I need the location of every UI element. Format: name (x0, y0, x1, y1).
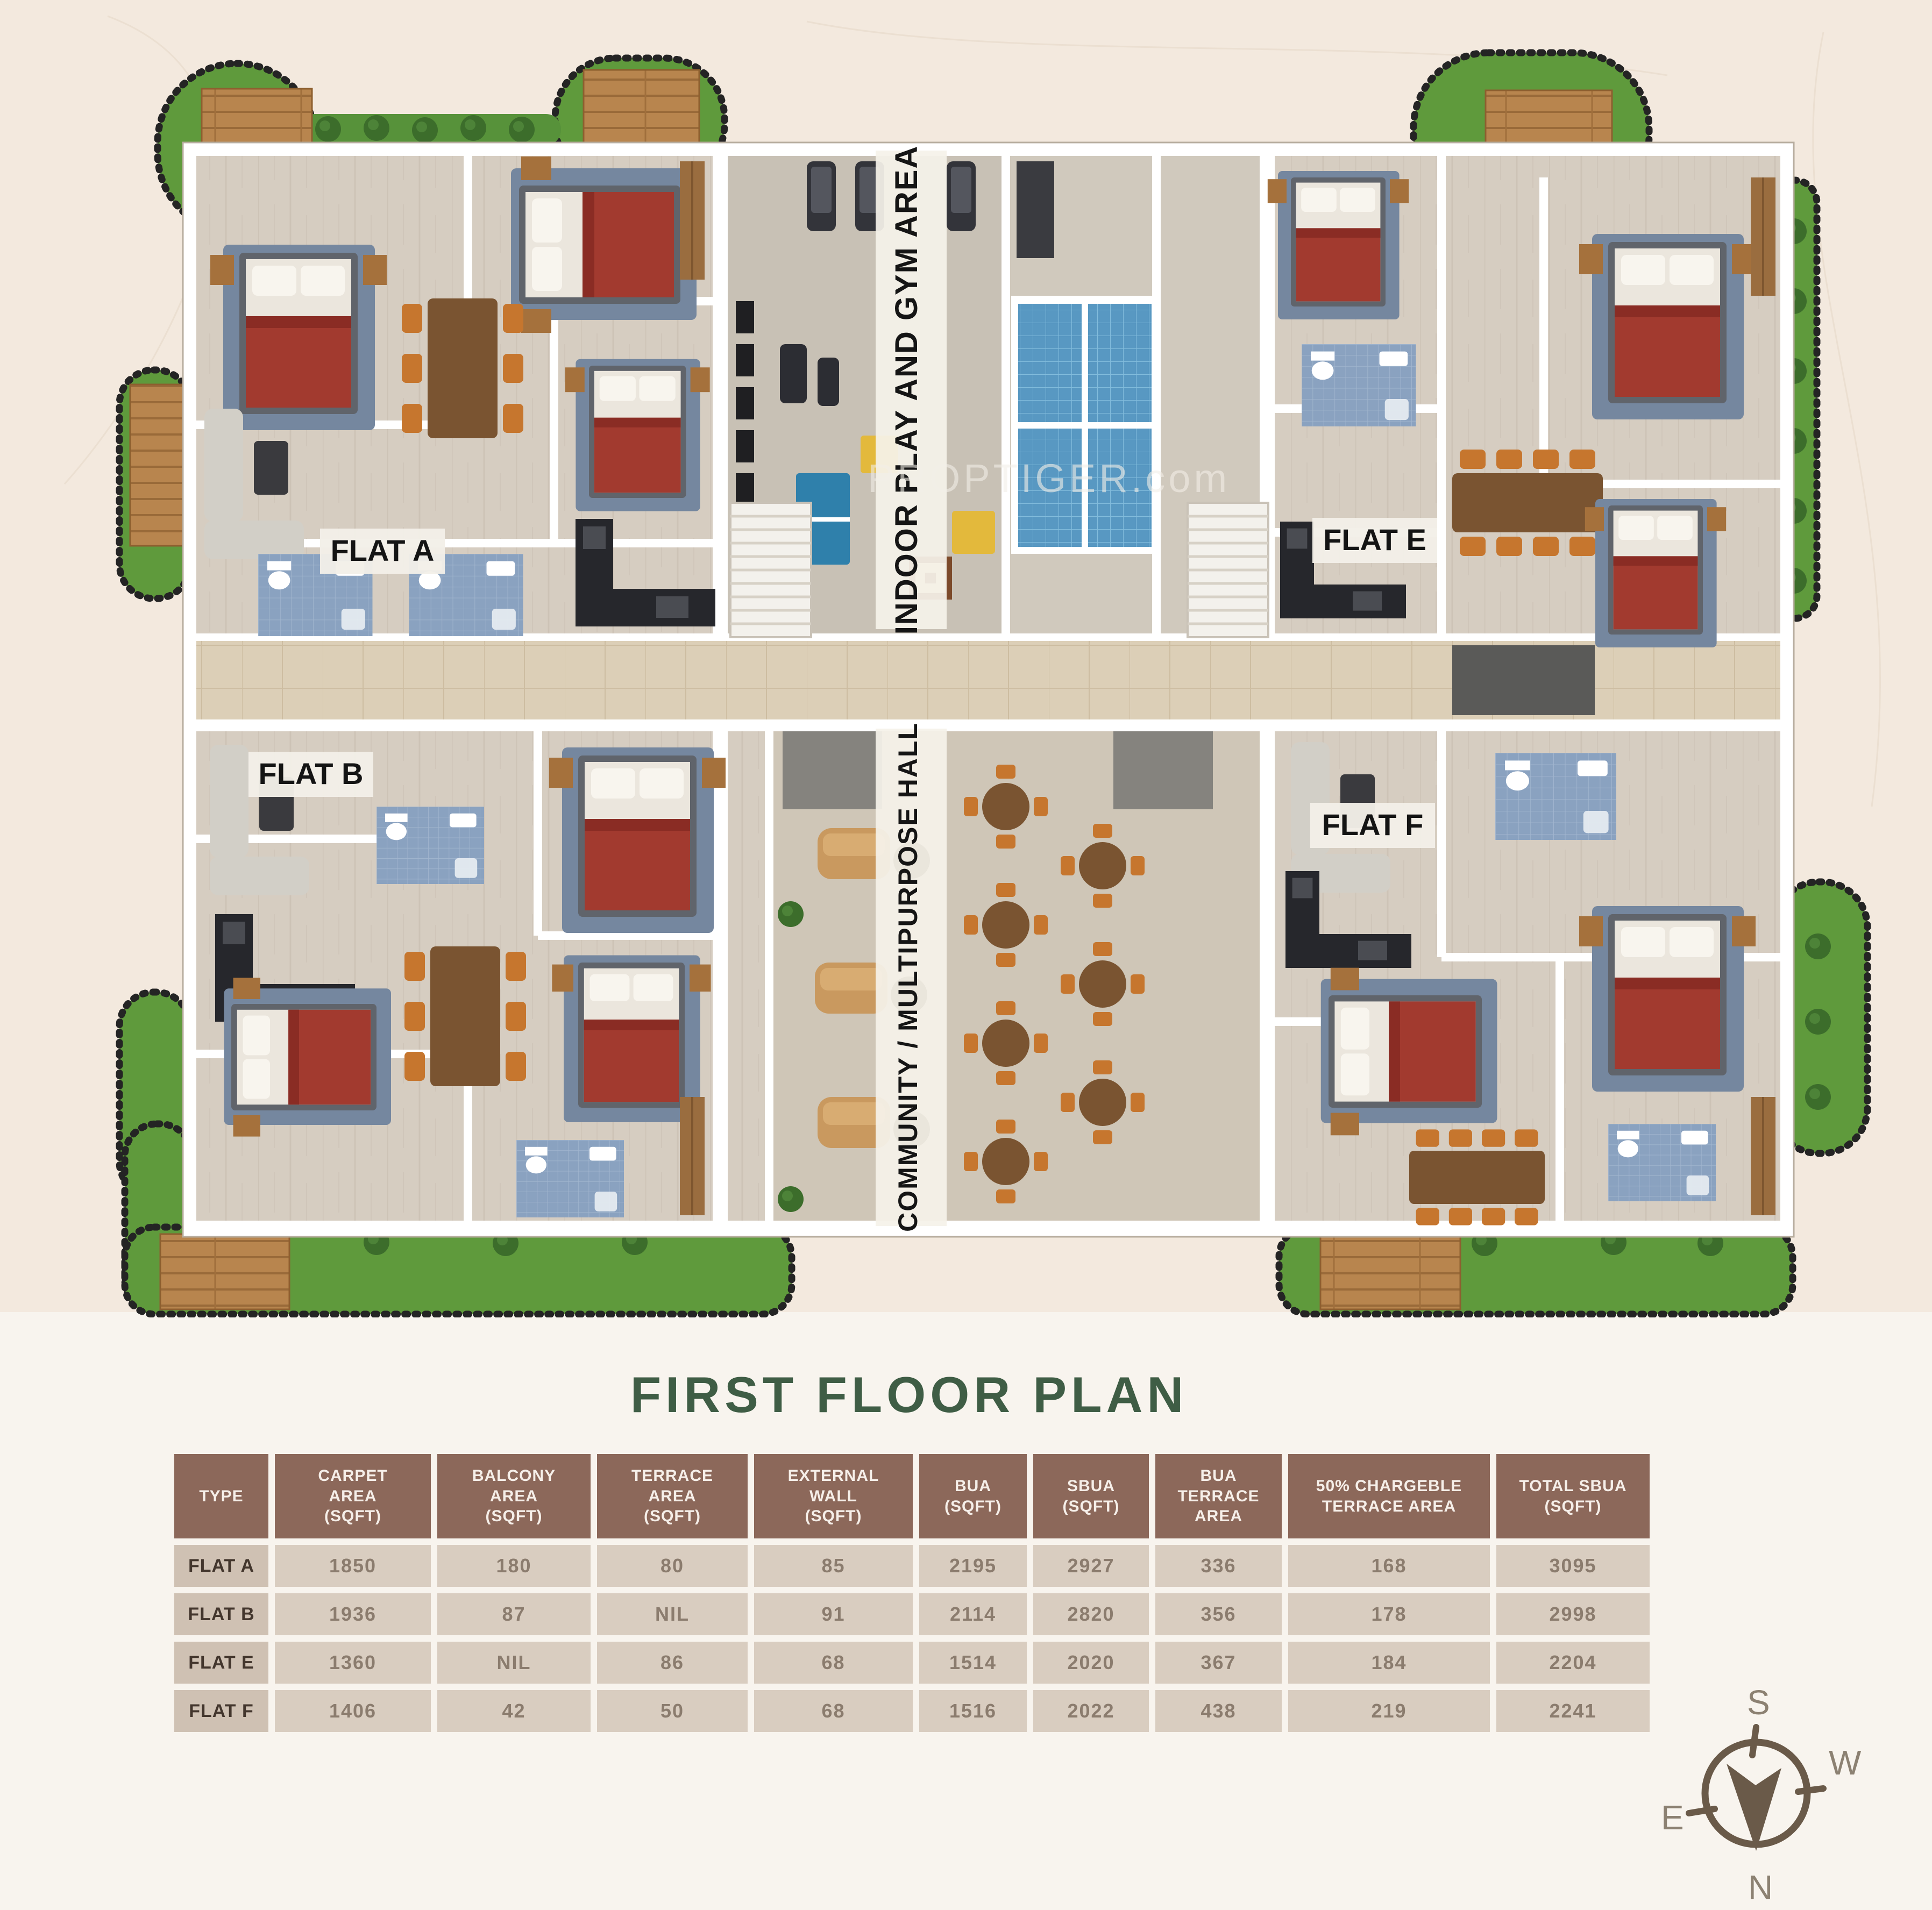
wood-deck (1320, 1237, 1460, 1309)
bed (1579, 234, 1756, 419)
wardrobe (680, 161, 705, 280)
value-cell: 2927 (1033, 1545, 1149, 1587)
value-cell: 1516 (919, 1690, 1027, 1732)
value-cell: 2241 (1496, 1690, 1650, 1732)
value-cell: 367 (1155, 1642, 1282, 1684)
value-cell: 168 (1288, 1545, 1490, 1587)
value-cell: 1850 (275, 1545, 431, 1587)
play-mat (952, 511, 995, 554)
value-cell: 219 (1288, 1690, 1490, 1732)
gym-bench (818, 358, 839, 406)
value-cell: 2020 (1033, 1642, 1149, 1684)
flat-f-label: FLAT F (1322, 808, 1424, 842)
bed (511, 156, 697, 333)
bed (1579, 906, 1756, 1092)
page-title: FIRST FLOOR PLAN (0, 1366, 1818, 1424)
row-label: FLAT A (174, 1545, 268, 1587)
value-cell: 2114 (919, 1593, 1027, 1635)
value-cell: 42 (437, 1690, 591, 1732)
center-lower-floor (723, 731, 769, 1221)
hall-label: COMMUNITY / MULTIPURPOSE HALL (893, 722, 923, 1232)
bed (210, 245, 387, 430)
header-cell: 50% CHARGEBLE TERRACE AREA (1288, 1454, 1490, 1538)
header-cell: BALCONY AREA (SQFT) (437, 1454, 591, 1538)
value-cell: 50 (597, 1690, 748, 1732)
staircase (730, 503, 811, 637)
bed (224, 978, 392, 1136)
store-block (783, 731, 882, 809)
value-cell: 2820 (1033, 1593, 1149, 1635)
table-row: FLAT E 1360 NIL 86 68 1514 2020 367 184 … (174, 1642, 1650, 1684)
value-cell: 1406 (275, 1690, 431, 1732)
bathroom (516, 1140, 624, 1217)
value-cell: 2204 (1496, 1642, 1650, 1684)
compass-icon: S W E N (1646, 1688, 1872, 1909)
header-row: TYPE CARPET AREA (SQFT) BALCONY AREA (SQ… (174, 1454, 1650, 1538)
value-cell: 3095 (1496, 1545, 1650, 1587)
compass-west: W (1829, 1743, 1862, 1782)
bed (565, 359, 710, 511)
wardrobe (680, 1097, 705, 1215)
staircase (1188, 503, 1268, 637)
wood-deck (160, 1234, 289, 1309)
compass-north: N (1748, 1868, 1773, 1907)
header-cell: TYPE (174, 1454, 268, 1538)
value-cell: 2195 (919, 1545, 1027, 1587)
dining-table (404, 946, 526, 1086)
gym-area-label: INDOOR PLAY AND GYM AREA (889, 145, 924, 635)
value-cell: 2998 (1496, 1593, 1650, 1635)
wardrobe (1751, 177, 1775, 296)
gym-equipment (807, 161, 836, 231)
shower-cell (1018, 304, 1082, 422)
bathroom (377, 807, 484, 884)
header-cell: EXTERNAL WALL (SQFT) (754, 1454, 913, 1538)
indoor-plant (778, 1186, 804, 1212)
value-cell: 80 (597, 1545, 748, 1587)
value-cell: 184 (1288, 1642, 1490, 1684)
flat-e-label: FLAT E (1323, 523, 1426, 557)
value-cell: 2022 (1033, 1690, 1149, 1732)
value-cell: 68 (754, 1690, 913, 1732)
value-cell: 87 (437, 1593, 591, 1635)
header-cell: BUA (SQFT) (919, 1454, 1027, 1538)
table-row: FLAT B 1936 87 NIL 91 2114 2820 356 178 … (174, 1593, 1650, 1635)
bed (549, 747, 726, 933)
row-label: FLAT B (174, 1593, 268, 1635)
gym-bench (780, 344, 807, 403)
value-cell: 68 (754, 1642, 913, 1684)
header-cell: TOTAL SBUA (SQFT) (1496, 1454, 1650, 1538)
wardrobe (1751, 1097, 1775, 1215)
header-cell: BUA TERRACE AREA (1155, 1454, 1282, 1538)
bathroom (1608, 1124, 1716, 1201)
value-cell: 91 (754, 1593, 913, 1635)
bathroom (1495, 753, 1616, 840)
value-cell: NIL (437, 1642, 591, 1684)
bed (1585, 499, 1726, 647)
table-row: FLAT A 1850 180 80 85 2195 2927 336 168 … (174, 1545, 1650, 1587)
value-cell: 336 (1155, 1545, 1282, 1587)
shower-cell (1088, 304, 1152, 422)
flat-b-label: FLAT B (259, 757, 364, 790)
value-cell: 180 (437, 1545, 591, 1587)
value-cell: 356 (1155, 1593, 1282, 1635)
value-cell: 1360 (275, 1642, 431, 1684)
value-cell: 438 (1155, 1690, 1282, 1732)
lockers (1017, 161, 1054, 258)
floor-plan-render: INDOOR PLAY AND GYM AREA COMMUNITY / MUL… (0, 0, 1932, 1317)
compass: S W E N (1646, 1688, 1872, 1910)
row-label: FLAT E (174, 1642, 268, 1684)
table-row: FLAT F 1406 42 50 68 1516 2022 438 219 2… (174, 1690, 1650, 1732)
flat-a-label: FLAT A (331, 533, 435, 567)
compass-south: S (1747, 1688, 1770, 1722)
store-block (1113, 731, 1213, 809)
value-cell: 85 (754, 1545, 913, 1587)
watermark: PROPTIGER.com (868, 456, 1230, 501)
value-cell: NIL (597, 1593, 748, 1635)
bed (1321, 968, 1497, 1136)
bed (1268, 171, 1409, 319)
header-cell: TERRACE AREA (SQFT) (597, 1454, 748, 1538)
wood-deck (130, 384, 187, 546)
value-cell: 1514 (919, 1642, 1027, 1684)
gym-equipment (947, 161, 976, 231)
brochure-page: INDOOR PLAY AND GYM AREA COMMUNITY / MUL… (0, 0, 1932, 1910)
dining-table (402, 298, 523, 438)
indoor-plant (778, 901, 804, 927)
value-cell: 86 (597, 1642, 748, 1684)
value-cell: 178 (1288, 1593, 1490, 1635)
background-texture (1813, 32, 1880, 807)
bathroom (1302, 344, 1416, 426)
elevator-block (1452, 645, 1595, 715)
area-table: TYPE CARPET AREA (SQFT) BALCONY AREA (SQ… (168, 1448, 1656, 1738)
header-cell: SBUA (SQFT) (1033, 1454, 1149, 1538)
header-cell: CARPET AREA (SQFT) (275, 1454, 431, 1538)
value-cell: 1936 (275, 1593, 431, 1635)
row-label: FLAT F (174, 1690, 268, 1732)
compass-east: E (1661, 1798, 1684, 1837)
